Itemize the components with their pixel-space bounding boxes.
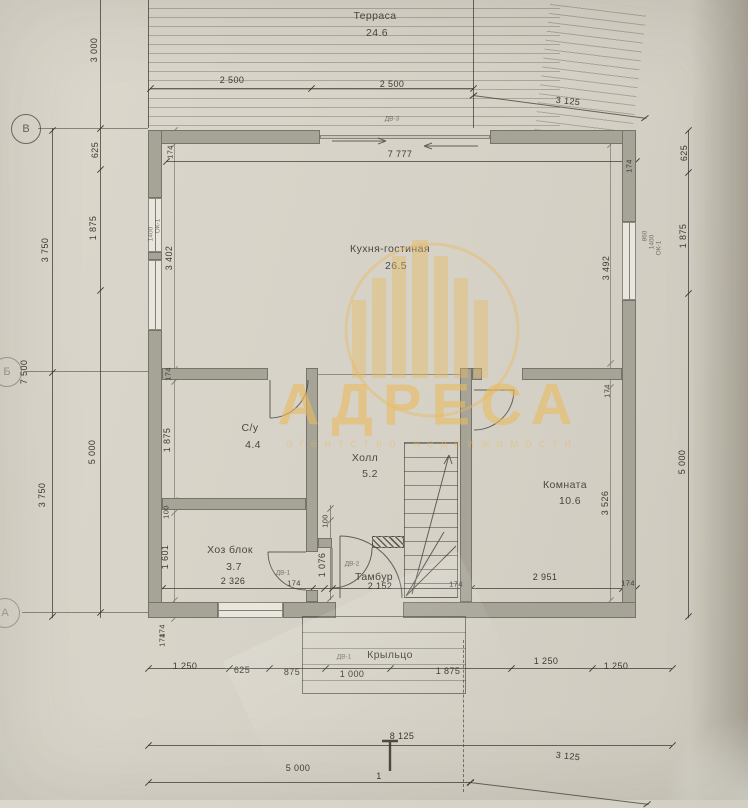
door-mark-utility: ДВ-1 [276, 570, 291, 577]
dim-bot-1000: 1 000 [340, 669, 365, 679]
dim-left-3000: 3 000 [89, 38, 99, 63]
window-mark-right: ОК-1 [656, 241, 663, 256]
axis-circle-v: В [11, 114, 41, 144]
sliding-door-sill [320, 135, 490, 139]
terrace-divider-line [473, 0, 474, 128]
partition-room-left [460, 368, 472, 602]
room-label-room: Комната [543, 479, 587, 491]
dim-left-625: 625 [90, 142, 100, 158]
partition-bathroom-right [306, 368, 318, 552]
dim-ir-174-mid: 174 [603, 384, 612, 398]
dim-bot-174: 174 [158, 633, 167, 647]
dim-il-100: 100 [162, 505, 171, 519]
dim-right-1875: 1 875 [678, 224, 688, 249]
window-sill-right: 860 [642, 231, 649, 242]
dim-bot-875: 875 [284, 667, 300, 677]
drawing-sheet: В Б А [0, 0, 748, 800]
door-arc-room [474, 390, 514, 430]
window-size-right: 1400 [649, 235, 656, 249]
door-mark-entrance: ДВ-1 [337, 654, 352, 661]
window-left-2 [148, 260, 162, 330]
axis-leader-top [38, 128, 148, 129]
dim-il-1875: 1 875 [162, 428, 172, 453]
dim-mid-174-c: 174 [621, 579, 635, 588]
staircase [404, 442, 458, 598]
room-area-bathroom: 4.4 [245, 439, 261, 451]
dim-bot-5000: 5 000 [286, 763, 311, 773]
dim-mid-2951: 2 951 [533, 572, 558, 582]
dim-bot-1250-b: 1 250 [534, 656, 559, 666]
wall-left-lower [148, 330, 162, 618]
dim-left-3750-bottom: 3 750 [37, 483, 47, 508]
dim-ir-3526: 3 526 [600, 491, 610, 516]
room-area-hall: 5.2 [362, 468, 378, 480]
dim-il-174-mid: 174 [164, 367, 173, 381]
door-mark-terrace: ДВ-3 [385, 116, 400, 123]
sliding-door-arrow-right [424, 143, 478, 149]
dim-bot-8125: 8 125 [390, 731, 415, 741]
room-label-terrace: Терраса [353, 10, 396, 22]
dim-line-3125-bottom [470, 782, 649, 805]
dim-il-174-top: 174 [166, 145, 175, 159]
terrace-decking-right [534, 0, 647, 143]
dim-left-7500: 7 500 [19, 360, 29, 385]
terrace-left-edge [148, 0, 149, 128]
window-right [622, 222, 636, 300]
dim-left-3750-top: 3 750 [40, 238, 50, 263]
passage-header-line [318, 374, 460, 375]
dim-il-1601: 1 601 [160, 545, 170, 570]
dim-ir-3492: 3 492 [601, 256, 611, 281]
wall-right-lower [622, 300, 636, 618]
partition-vestibule-hatch [372, 536, 404, 548]
dim-line-5000 [148, 782, 470, 783]
axis-circle-a: А [0, 598, 20, 628]
dim-right-5000: 5 000 [677, 450, 687, 475]
room-area-room: 10.6 [559, 495, 581, 507]
watermark-skyline [352, 240, 488, 378]
room-area-terrace: 24.6 [366, 27, 388, 39]
floor-plan-photo: В Б А [0, 0, 748, 800]
room-label-hall: Холл [352, 452, 378, 464]
dim-left-5000: 5 000 [87, 440, 97, 465]
dim-left-1875: 1 875 [88, 216, 98, 241]
dim-terrace-right: 2 500 [380, 79, 405, 89]
partition-bathroom-utility [162, 498, 306, 510]
dim-bot-1250-c: 1 250 [604, 661, 629, 671]
dim-line-mid-bottom [162, 588, 636, 589]
dim-line-vestibule-v [330, 505, 331, 600]
dim-bot-1875: 1 875 [436, 666, 461, 676]
dim-line-left-inner [100, 0, 101, 618]
partition-utility-stub [306, 590, 318, 602]
dim-line-7777 [166, 161, 636, 162]
partition-vestibule-a [318, 538, 332, 548]
room-label-bathroom: С/у [242, 422, 259, 434]
dim-ir-174-top: 174 [625, 159, 634, 173]
section-number: 1 [376, 771, 381, 781]
wall-right-upper [622, 130, 636, 222]
dim-mid-2326: 2 326 [221, 576, 246, 586]
dim-line-terrace [150, 88, 473, 89]
room-label-porch: Крыльцо [367, 649, 413, 661]
wall-left-mullion [148, 252, 162, 260]
door-arc-bathroom [270, 380, 308, 418]
dim-line-8125 [148, 745, 672, 746]
door-mark-vestibule: ДВ-2 [345, 561, 360, 568]
wall-top-left [148, 130, 320, 144]
dim-mid-174-a: 174 [287, 579, 301, 588]
room-label-utility: Хоз блок [207, 544, 253, 556]
axis-letter-a: А [1, 607, 8, 619]
wall-bottom-a [148, 602, 218, 618]
dim-il-3402: 3 402 [164, 246, 174, 271]
watermark-circle [346, 244, 518, 416]
wall-top-right [490, 130, 636, 144]
wall-left-upper [148, 130, 162, 198]
room-label-kitchen: Кухня-гостиная [350, 243, 430, 255]
dim-bot-1250-a: 1 250 [173, 661, 198, 671]
dim-mid-1076: 1 076 [317, 553, 327, 578]
room-area-kitchen: 26.5 [385, 260, 407, 272]
partition-room-top-b [522, 368, 622, 380]
dim-mid-174-b: 174 [449, 580, 463, 589]
watermark-title: АДРЕСА [277, 372, 582, 439]
dim-terrace-left: 2 500 [220, 75, 245, 85]
axis-letter-v: В [22, 123, 29, 135]
partition-room-top-a [472, 368, 482, 380]
window-mark-left: ОК-1 [155, 219, 162, 234]
dim-right-625: 625 [679, 145, 689, 161]
axis-letter-b: Б [3, 366, 10, 378]
room-area-utility: 3.7 [226, 561, 242, 573]
dim-inner-width: 7 777 [388, 149, 413, 159]
dim-line-right [688, 130, 689, 618]
window-size-left: 1400 [148, 227, 155, 241]
dim-mid-100: 100 [321, 514, 330, 528]
partition-kitchen-a [162, 368, 268, 380]
dim-line-left-outer [52, 128, 53, 618]
axis-leader-middle [26, 371, 150, 372]
axis-leader-bottom [22, 612, 150, 613]
dim-mid-2152: 2 152 [368, 581, 393, 591]
dim-bot-3125: 3 125 [555, 750, 580, 763]
window-bottom [218, 602, 283, 618]
dim-bot-625: 625 [234, 665, 250, 675]
